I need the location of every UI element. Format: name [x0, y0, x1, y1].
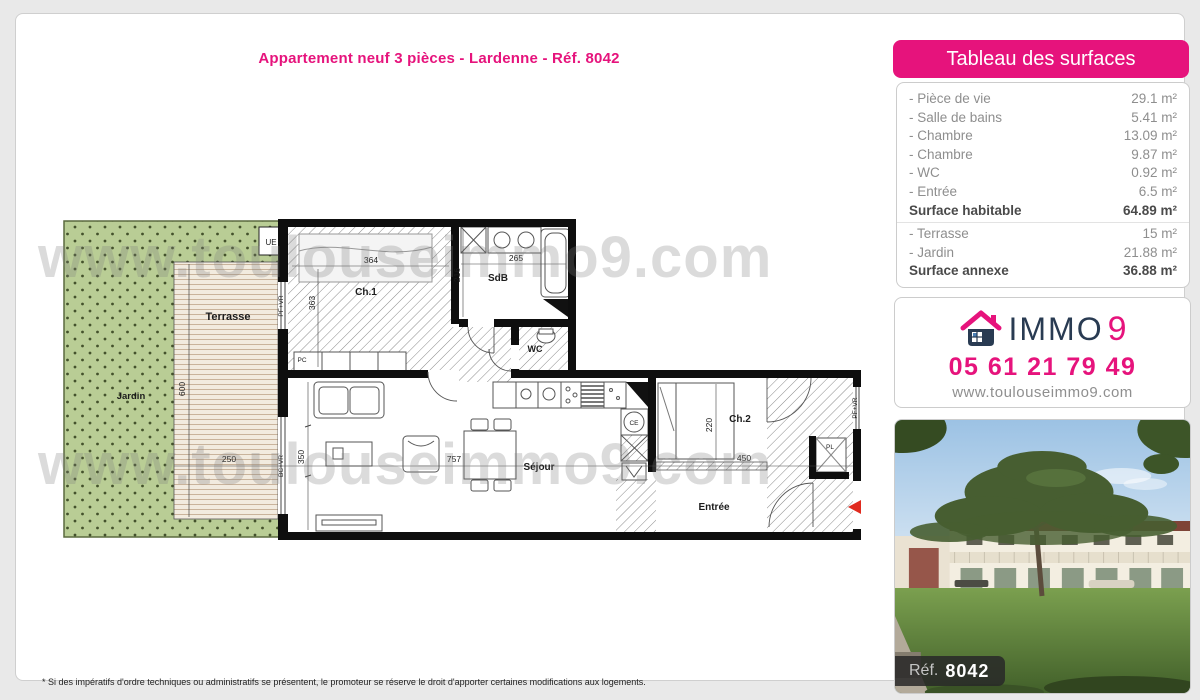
dim-350: 350 [296, 450, 306, 464]
surface-row: - Pièce de vie29.1 m² [897, 90, 1189, 109]
surface-row: - WC0.92 m² [897, 164, 1189, 183]
surface-row-label: - Salle de bains [909, 109, 1002, 128]
chair [494, 480, 511, 491]
wc-label: WC [528, 344, 543, 354]
surface-row-value: 64.89 m² [1123, 202, 1177, 221]
bathroom-label: SdB [488, 273, 508, 284]
surfaces-header-label: Tableau des surfaces [946, 48, 1135, 71]
surfaces-header: Tableau des surfaces [893, 40, 1189, 78]
surface-row: - Terrasse15 m² [897, 225, 1189, 244]
surface-row: - Entrée6.5 m² [897, 183, 1189, 202]
contact-card: IMMO9 05 61 21 79 49 www.toulouseimmo9.c… [894, 297, 1191, 408]
kitchen-vent [581, 382, 604, 408]
dim-364: 364 [364, 255, 378, 265]
brand-logo: IMMO9 [895, 308, 1190, 350]
dim-220: 220 [704, 418, 714, 432]
surface-row-label: - Chambre [909, 146, 973, 165]
floor-plan-svg: UE Terrasse 600 250 Jardin [56, 209, 866, 549]
surface-row-value: 9.87 m² [1131, 146, 1177, 165]
website-link[interactable]: www.toulouseimmo9.com [895, 384, 1190, 401]
pl-label: PL [826, 444, 834, 451]
surface-row-label: - Terrasse [909, 225, 969, 244]
chair [494, 419, 511, 430]
brand-nine-text: 9 [1108, 310, 1127, 349]
dim-363: 363 [307, 296, 317, 310]
window-tag-bcvr: BC+VR [278, 455, 285, 477]
footnote: * Si des impératifs d'ordre techniques o… [42, 677, 646, 687]
entry-pillar [616, 479, 656, 532]
surface-row-label: - Jardin [909, 244, 954, 263]
surface-row-value: 36.88 m² [1123, 262, 1177, 281]
terrace-dim-250: 250 [222, 454, 236, 464]
dim-216: 216 [452, 268, 462, 282]
surface-row-label: - Entrée [909, 183, 957, 202]
surface-row-label: Surface habitable [909, 202, 1022, 221]
brand-immo-text: IMMO [1008, 311, 1103, 348]
surfaces-table: - Pièce de vie29.1 m²- Salle de bains5.4… [896, 82, 1190, 288]
hallway-floor [451, 327, 511, 370]
surface-row-label: Surface annexe [909, 262, 1009, 281]
surface-row-label: - Pièce de vie [909, 90, 991, 109]
surface-row: Surface habitable64.89 m² [897, 202, 1189, 224]
surface-row: - Chambre9.87 m² [897, 146, 1189, 165]
reference-value: 8042 [945, 661, 989, 682]
reference-badge: Réf. 8042 [895, 656, 1005, 686]
ue-label: UE [265, 238, 276, 247]
surface-row-value: 6.5 m² [1139, 183, 1177, 202]
surface-row-label: - Chambre [909, 127, 973, 146]
terrace-label: Terrasse [205, 311, 250, 323]
phone-number: 05 61 21 79 49 [895, 353, 1190, 382]
dim-757: 757 [447, 454, 461, 464]
reference-label: Réf. [909, 662, 938, 680]
surface-row-value: 5.41 m² [1131, 109, 1177, 128]
window-tag-pfvr-right: PF+VR [852, 397, 859, 418]
surface-row-value: 13.09 m² [1124, 127, 1177, 146]
bedroom2-label: Ch.2 [729, 414, 751, 425]
pc-label: PC [297, 357, 306, 364]
surface-row: Surface annexe36.88 m² [897, 262, 1189, 281]
chair [471, 419, 488, 430]
property-photo: Réf. 8042 [894, 419, 1191, 694]
surface-row-value: 21.88 m² [1124, 244, 1177, 263]
house-icon [958, 308, 1004, 350]
terrace-area: Terrasse 600 250 [174, 262, 278, 519]
surface-row-value: 0.92 m² [1131, 164, 1177, 183]
surface-row: - Chambre13.09 m² [897, 127, 1189, 146]
chair [471, 480, 488, 491]
dim-265: 265 [509, 253, 523, 263]
surface-row: - Jardin21.88 m² [897, 244, 1189, 263]
garden-label: Jardin [117, 391, 146, 402]
living-label: Séjour [523, 462, 554, 473]
surface-row-value: 29.1 m² [1131, 90, 1177, 109]
bedroom1-label: Ch.1 [355, 287, 377, 298]
ce-label: CE [629, 420, 639, 427]
property-rendering [895, 420, 1190, 693]
kitchen-counter [493, 382, 626, 408]
surface-row-label: - WC [909, 164, 940, 183]
page-title: Appartement neuf 3 pièces - Lardenne - R… [76, 50, 802, 67]
bed2 [658, 383, 734, 459]
brochure-panel: Appartement neuf 3 pièces - Lardenne - R… [15, 13, 1185, 681]
window-tag-pfvr-left: PF+VR [278, 295, 285, 316]
surface-row-value: 15 m² [1142, 225, 1177, 244]
floor-plan: UE Terrasse 600 250 Jardin [56, 209, 866, 549]
terrace-dim-600: 600 [177, 382, 187, 396]
surface-row: - Salle de bains5.41 m² [897, 109, 1189, 128]
dining-table [464, 431, 516, 479]
dim-450: 450 [737, 453, 751, 463]
entry-label: Entrée [698, 502, 730, 513]
